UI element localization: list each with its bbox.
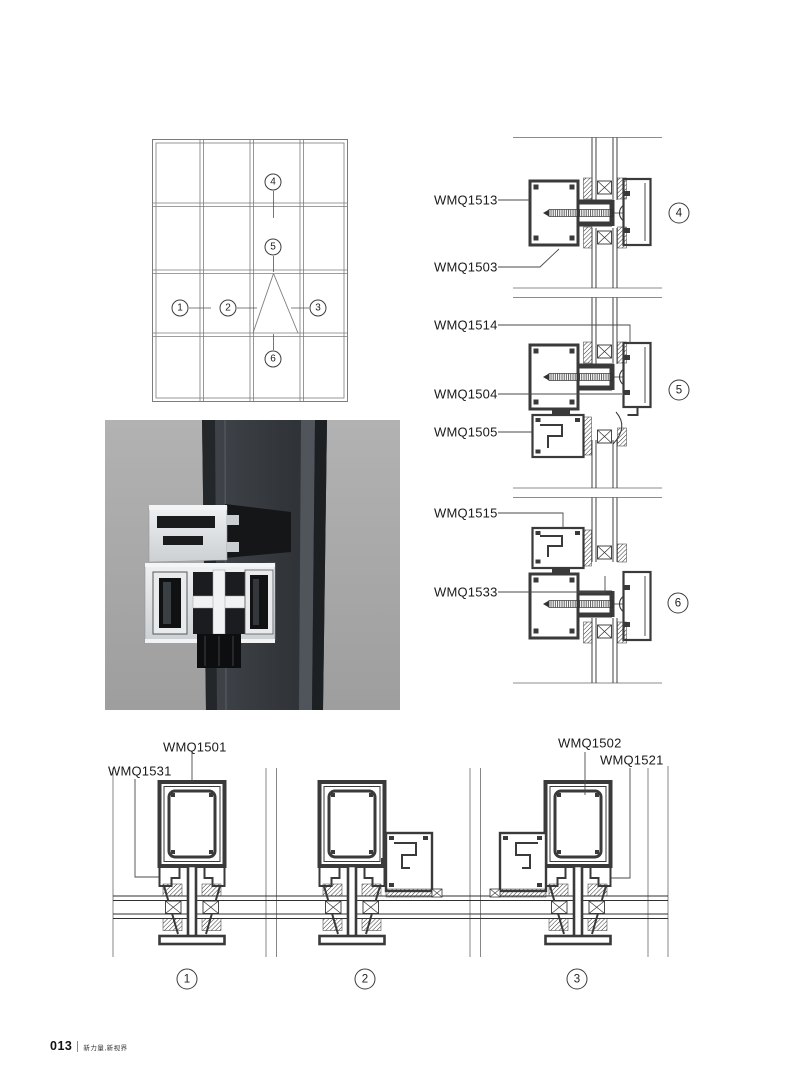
section-callout-4: 4 — [669, 203, 690, 224]
callout-number: 3 — [315, 303, 321, 314]
footer-divider — [77, 1041, 78, 1052]
detail-2-mullion-vent — [320, 782, 443, 944]
callout-number: 1 — [177, 303, 183, 314]
label-wmq1502: WMQ1502 — [558, 736, 622, 751]
plan-callout-1: 1 — [177, 969, 198, 990]
elevation-callout-4: 4 — [265, 174, 282, 191]
detail-1-mullion — [160, 782, 225, 944]
label-wmq1521: WMQ1521 — [600, 753, 664, 768]
elevation-grid — [153, 140, 348, 402]
footer-slogan: 新力量,新视界 — [83, 1042, 127, 1052]
elevation-callout-1: 1 — [172, 300, 189, 317]
plan-callout-2: 2 — [355, 969, 376, 990]
label-wmq1515: WMQ1515 — [434, 506, 498, 521]
elevation-callout-5: 5 — [265, 239, 282, 256]
page-footer: 013 新力量,新视界 — [50, 1039, 128, 1053]
label-wmq1514: WMQ1514 — [434, 318, 498, 333]
label-wmq1531: WMQ1531 — [108, 764, 172, 779]
glazing-gaskets-spacers — [584, 178, 627, 643]
elevation-callout-6: 6 — [265, 351, 282, 368]
callout-number: 2 — [362, 973, 368, 985]
label-wmq1503: WMQ1503 — [434, 260, 498, 275]
elevation-callout-leaders — [189, 191, 309, 350]
plan-callout-3: 3 — [567, 969, 588, 990]
render-transom-cut — [149, 504, 291, 562]
elevation-callout-3: 3 — [310, 300, 327, 317]
page-number: 013 — [50, 1039, 72, 1053]
label-wmq1533: WMQ1533 — [434, 585, 498, 600]
callout-number: 6 — [675, 597, 681, 609]
callout-number: 4 — [270, 177, 276, 188]
callout-number: 6 — [270, 354, 276, 365]
label-wmq1501: WMQ1501 — [163, 740, 227, 755]
catalog-page: 1 2 3 4 5 6 — [0, 0, 800, 1085]
callout-number: 5 — [676, 384, 682, 396]
section-callout-6: 6 — [668, 593, 689, 614]
label-wmq1504: WMQ1504 — [434, 387, 498, 402]
section-callout-5: 5 — [669, 380, 690, 401]
detail-3-mullion-vent — [490, 782, 611, 944]
callout-number: 1 — [184, 973, 190, 985]
label-wmq1513: WMQ1513 — [434, 193, 498, 208]
elevation-diagram — [140, 128, 365, 413]
callout-number: 3 — [574, 973, 580, 985]
callout-number: 2 — [225, 303, 231, 314]
profile-3d-render — [105, 420, 400, 710]
label-wmq1505: WMQ1505 — [434, 425, 498, 440]
vent-triangle-symbol — [253, 274, 298, 334]
callout-number: 5 — [270, 242, 276, 253]
elevation-callout-2: 2 — [220, 300, 237, 317]
callout-number: 4 — [676, 207, 682, 219]
